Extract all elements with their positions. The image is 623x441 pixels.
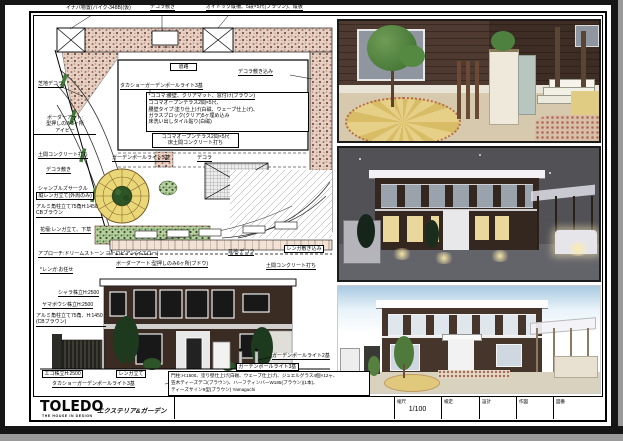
plan-label-approach: アプローチ:ドリームストーン ヨーロピアン(イエロー) [38,251,158,258]
entrance [443,210,469,250]
garden-light-glow [489,250,511,262]
plan-label-lawn: 芝地デコラ [38,81,63,88]
field-label-scale: 縮尺 [397,399,406,405]
garden-light-glow [433,252,455,264]
scan-edge-right [611,0,618,441]
titleblock-divider [174,397,175,419]
pillar-plant [491,31,515,51]
yellow-gravel [571,91,601,115]
scan-edge-bottom [0,426,623,434]
titleblock-field-scale: 縮尺 1/100 [394,397,441,419]
sign-panel [518,55,536,115]
window [575,25,599,47]
render-night-perspective [337,146,601,282]
circle-paving [345,97,461,143]
field-label-design: 設計 [482,399,491,405]
plan-driveway-area [55,50,118,252]
titleblock-field-check: 検定 [441,397,479,419]
company-subtitle: エクステリア&ガーデン [97,405,167,415]
plan-label-brick-paving: レンガ敷き込み [284,245,324,253]
red-gravel-bed [438,370,510,379]
wood-post [581,31,586,87]
plan-label-pole-light: タカショーガーデンポールライト3基 [120,83,203,90]
gate-pillar [489,49,519,125]
elev-label-takasho: タカショーガーデンポールライト3基 [52,381,135,388]
plan-label-shed: イナバ物置(バイク-348B)(仮) [66,5,131,12]
tree-foliage [399,45,425,67]
garden-light-glow [391,248,413,260]
titleblock-field-design: 設計 [479,397,516,419]
plan-label-border-art-line3: アイビー [34,128,96,134]
title-block: TOLEDO THE HOUSE IN DESIGN エクステリア&ガーデン 縮… [33,396,603,418]
titleblock-field-drafting: 作図 [516,397,553,419]
elev-label-yamaboushi: ヤマボウシ株立H:2500 [42,302,93,309]
render-day-perspective [337,285,601,394]
plan-label-road: 道路 [170,63,197,71]
plan-label-border-art-bottom: ボーダーアート:型押しのみ6ヶ所(ブドウ) [116,261,208,268]
upper-window-row [388,314,536,336]
plan-label-joint-decora: 目地:デコラ [228,249,254,256]
plan-label-circle-brick: 縦レンガ立て(外周のみ) [36,192,94,200]
plan-label-garden-pole: ガーデンポールライト3基 [112,155,170,162]
tree-trunk [403,364,405,378]
drawing-sheet-scan: イナバ物置(バイク-348B)(仮) デコラ敷き オイトック縦柵、5段×5尺(ブ… [0,0,623,441]
elev-label-alumi: アルミ角柱立て75角、H:1450 (CBブラウン) [36,313,106,327]
plan-label-decora-mid: デコラ [197,155,212,162]
elev-label-alumi-line2: (CBブラウン) [36,319,106,325]
plan-label-flowerbed: 花壇:レンガ立て、下草 [40,227,91,234]
plan-terrace-line2: 床土間コンクリート打ち [155,140,237,146]
plan-cocoma-note: *ココマ:腰壁、クリアマット、窓付け(ブラウン) [149,93,256,100]
upper-window-row [381,184,533,208]
elev-label-ego: エゴ株立H:2500 [42,370,83,378]
field-value-scale: 1/100 [394,406,441,413]
plan-label-alumi-line2: CBブラウン [36,210,102,216]
elev-label-pole3: ガーデンポールライト3基 [236,363,299,371]
wood-slat-screen [457,61,481,119]
plan-shambles-circle-paving [95,169,149,223]
elev-label-shara: シャラ株立H:2500 [58,290,99,297]
garden-light-glow [565,242,591,256]
plan-label-decora-left: デコラ敷き [46,167,71,174]
elev-label-pole2: ガーデンポールライト2基 [272,353,330,360]
plan-label-border-art-left: ボーダーアート: 型押しのみ3ヶ所 アイビー [34,115,96,135]
field-label-drafting: 作図 [519,399,528,405]
plan-north-fence-band [57,28,332,52]
red-gravel-bed [535,115,601,143]
circle-paving [384,374,440,392]
stars [359,158,361,160]
window [496,344,522,367]
elev-gate-spec-line3: ティーズサイン9型(ブラウン) Yamaguchi [171,387,367,394]
elev-gate-pillar-spec-box: 門柱:H:1500、塗り壁仕上げ(白磁、ウェーブ仕上げ)、ジュエルグラス4個×1… [168,371,370,396]
terrace-low-wall [554,356,598,378]
titleblock-field-number: 図番 [553,397,603,419]
lit-window-row [475,216,515,240]
plan-label-decora-right: デコラ敷き込み [238,69,273,76]
elev-label-renga: レンガ立て [116,370,146,378]
company-tagline: THE HOUSE IN DESIGN [42,414,93,418]
plan-label-doma-bottom: 土間コンクリート打ち [266,263,316,270]
plan-terrace-box: ココマオープンテラス2間×5尺 床土間コンクリート打ち [152,133,239,148]
tree-silhouette [425,220,439,248]
plan-label-brick-note: *レンガ:お任せ [40,267,73,274]
wood-post [555,27,560,87]
plan-label-decora-top: デコラ敷き [150,4,175,11]
entrance [448,339,474,372]
elev-gate-spec-line1: 門柱:H:1500、塗り壁仕上げ(白磁、ウェーブ仕上げ)、ジュエルグラス4個×1… [171,373,367,380]
plan-label-alumi-post: アルミ角柱立て75角H:1450 CBブラウン [36,204,102,218]
plan-label-doma-left: 土間コンクリート打ち [38,152,88,159]
tree-silhouette [357,214,375,248]
field-label-number: 図番 [556,399,565,405]
field-label-check: 検定 [444,399,453,405]
scan-shadow-bottom [0,434,623,441]
render-entrance-perspective [337,19,601,143]
plan-cocoma-spec4: 床洗い出しタイル貼り(白磁) [149,119,307,125]
plan-label-oitok: オイトック縦柵、5段×5尺(ブラウン)、縦板 [206,4,303,11]
elev-gate-spec-line2: 笠木ティーズデコ(ブラウン)、ハーフティンバーW185(ブラウン)(1本)、 [171,380,367,387]
plan-cocoma-spec-box: *ココマ:腰壁、クリアマット、窓付け(ブラウン) ココマオープンテラス2間×5尺… [146,92,309,132]
scan-shadow-right [618,0,623,441]
